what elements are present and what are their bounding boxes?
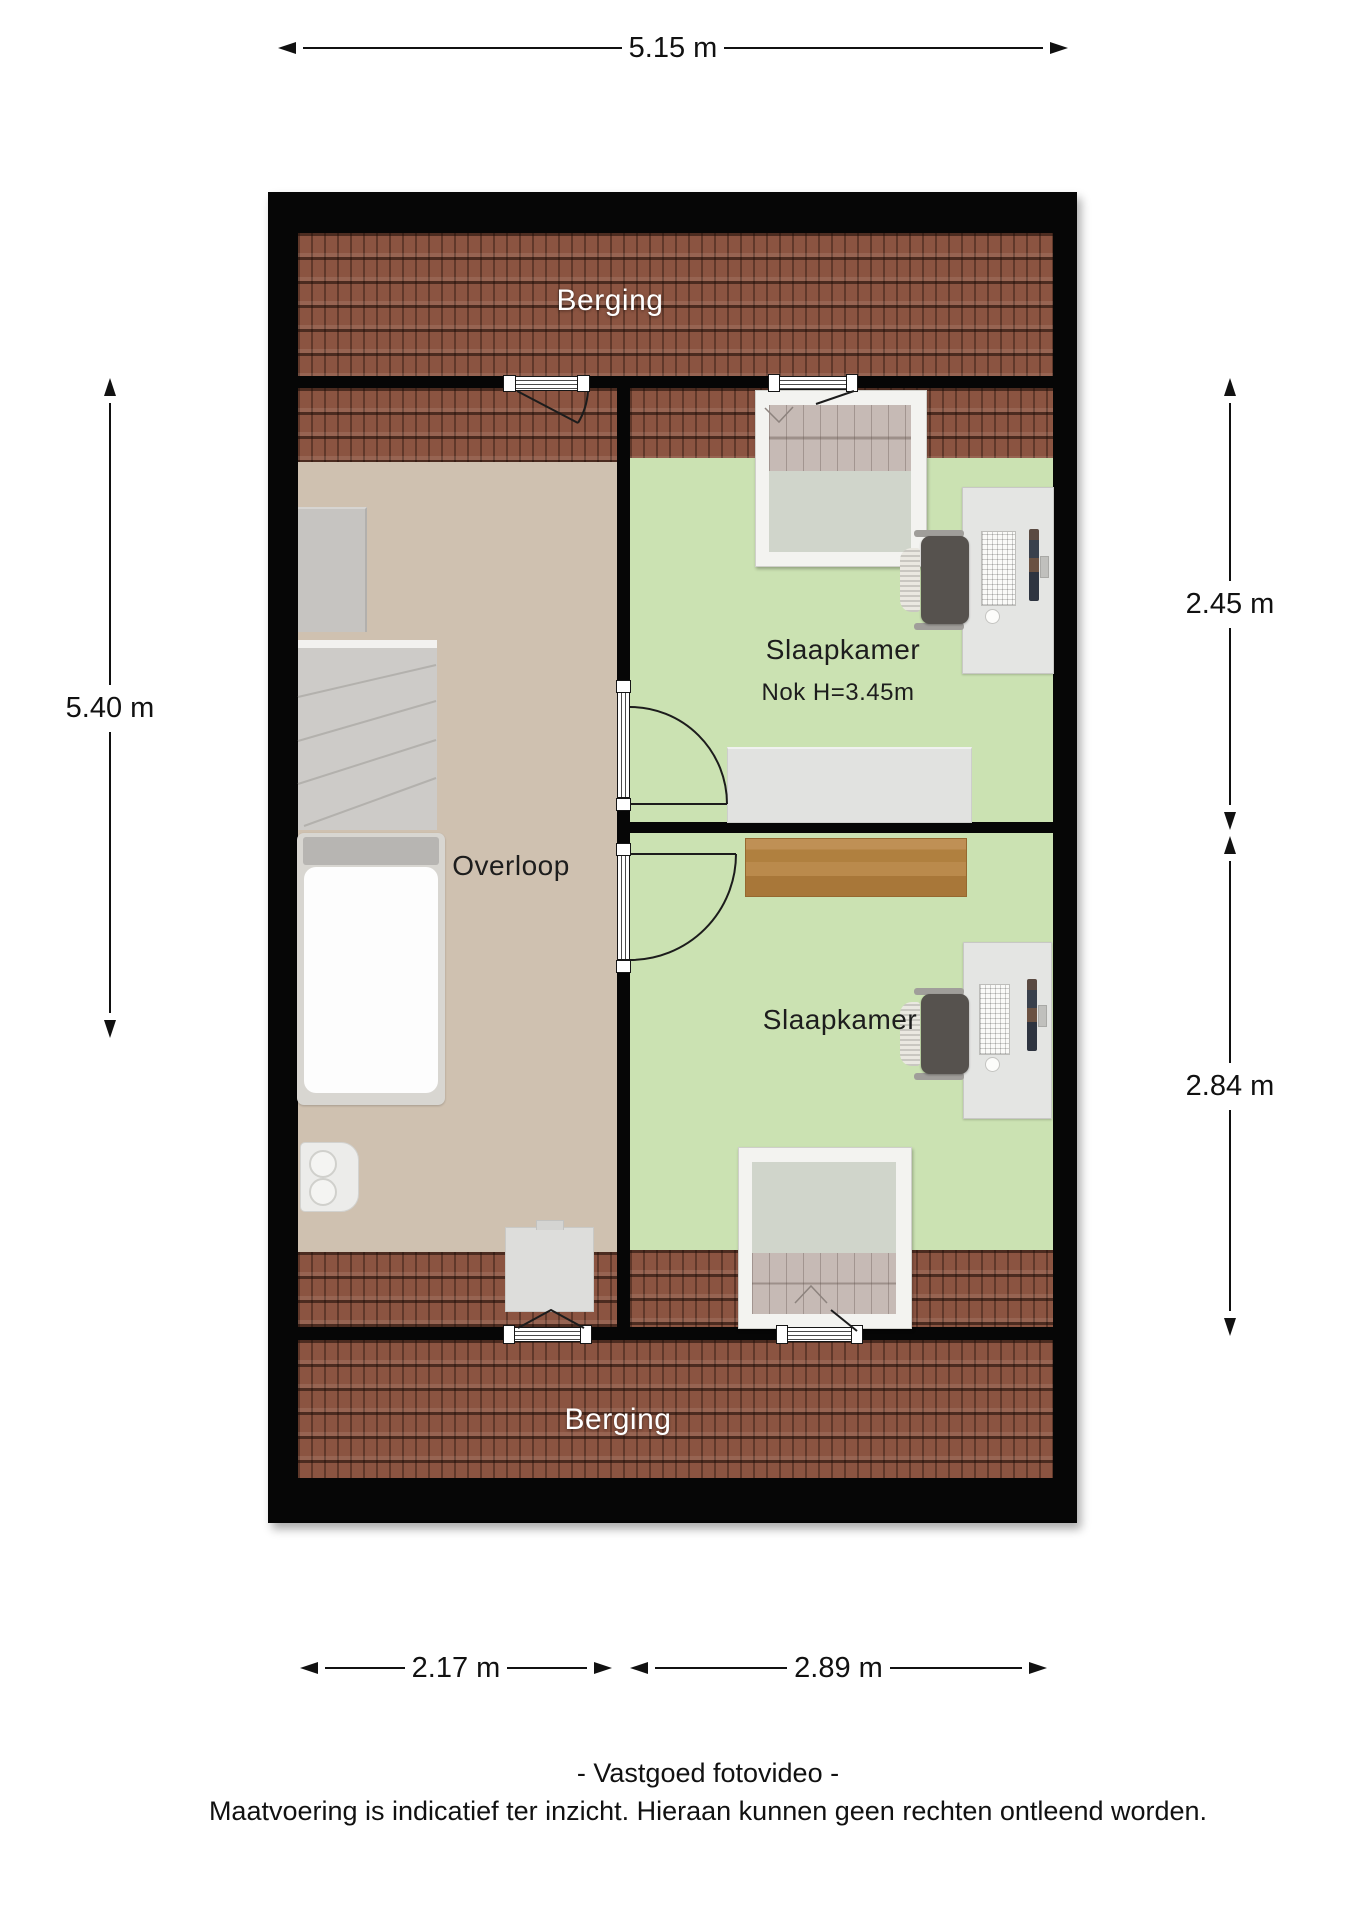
dimension-line: [724, 47, 1043, 49]
dimension-bottom-left-label: 2.17 m: [412, 1652, 501, 1685]
dimension-line: [325, 1667, 405, 1669]
window-jamb: [580, 1325, 592, 1344]
dimension-top-width: 5.15 m: [278, 33, 1068, 63]
arrowhead-left-icon: [278, 42, 296, 54]
bed-duvet: [304, 867, 438, 1093]
window-jamb: [776, 1325, 788, 1344]
door-jamb: [616, 798, 631, 811]
stairs-upper-flight: [298, 507, 367, 632]
dimension-right-lower: 2.84 m: [1178, 836, 1282, 1336]
chair-armrest: [914, 623, 964, 630]
door-lower-bedroom: [617, 855, 630, 960]
room-berging-top: [298, 233, 1053, 376]
bed-headboard: [303, 837, 439, 865]
window-jamb: [768, 374, 780, 392]
boiler-unit: [300, 1142, 359, 1212]
dimension-line: [109, 403, 111, 685]
window-top-wall: [770, 376, 858, 390]
boiler-dial-icon: [309, 1150, 337, 1178]
dimension-bottom-left: 2.17 m: [300, 1653, 612, 1683]
dimension-line: [1229, 1110, 1231, 1312]
dimension-line: [1229, 628, 1231, 806]
door-jamb: [503, 375, 516, 392]
desk-chair-upper: [900, 530, 969, 630]
door-jamb: [616, 680, 631, 693]
chair-armrest: [914, 1073, 964, 1080]
sideboard-upper-bedroom: [727, 747, 972, 823]
dimension-line: [1229, 403, 1231, 581]
window-jamb: [851, 1325, 863, 1344]
chair-backrest: [900, 548, 920, 612]
monitor-stand-icon: [1040, 556, 1049, 578]
footer-disclaimer: Maatvoering is indicatief ter inzicht. H…: [58, 1796, 1358, 1827]
monitor-stand-icon: [1038, 1005, 1047, 1027]
dimension-line: [1229, 861, 1231, 1063]
label-berging-bottom: Berging: [565, 1403, 672, 1437]
dimension-line: [303, 47, 622, 49]
stairs-winder-flight: [298, 648, 437, 830]
monitor-icon: [1027, 979, 1037, 1051]
footer-credit: - Vastgoed fotovideo -: [58, 1758, 1358, 1789]
desk-upper-bedroom: [962, 487, 1054, 674]
room-berging-bottom: [298, 1340, 1053, 1478]
side-table: [505, 1227, 594, 1312]
dimension-right-lower-label: 2.84 m: [1186, 1070, 1275, 1103]
dimension-left-label: 5.40 m: [66, 692, 155, 725]
monitor-icon: [1029, 529, 1039, 601]
arrowhead-left-icon: [300, 1662, 318, 1674]
roof-window-lower: [738, 1147, 912, 1329]
chair-seat: [921, 994, 969, 1074]
footer: - Vastgoed fotovideo - Maatvoering is in…: [0, 1758, 1358, 1827]
boiler-dial-icon: [309, 1178, 337, 1206]
window-jamb: [846, 374, 858, 392]
door-jamb: [616, 843, 631, 856]
sloped-roof-strip-overloop-top: [298, 388, 617, 462]
roof-window-upper-glass-top: [769, 405, 911, 471]
sideboard-wood-lower-bedroom: [745, 838, 967, 897]
floor-plan: Berging Overloop Slaapkamer Nok H=3.45m …: [268, 192, 1077, 1523]
label-berging-top: Berging: [557, 284, 664, 318]
label-slaapkamer-lower: Slaapkamer: [763, 1004, 917, 1036]
door-jamb: [616, 960, 631, 973]
arrowhead-right-icon: [594, 1662, 612, 1674]
dimension-left-height: 5.40 m: [58, 378, 162, 1038]
mouse-icon: [985, 609, 1000, 624]
side-table-handle: [536, 1220, 564, 1230]
dimension-bottom-right: 2.89 m: [630, 1653, 1047, 1683]
arrowhead-left-icon: [630, 1662, 648, 1674]
arrowhead-down-icon: [1224, 812, 1236, 830]
dimension-right-upper-label: 2.45 m: [1186, 588, 1275, 621]
dimension-bottom-right-label: 2.89 m: [794, 1652, 883, 1685]
door-jamb: [577, 375, 590, 392]
floor-plan-page: Berging Overloop Slaapkamer Nok H=3.45m …: [0, 0, 1358, 1920]
dimension-line: [109, 732, 111, 1014]
roof-window-lower-glass-bottom: [752, 1253, 896, 1314]
dimension-top-label: 5.15 m: [629, 32, 718, 65]
arrowhead-right-icon: [1029, 1662, 1047, 1674]
bed: [297, 833, 445, 1105]
stairs-landing-edge: [298, 640, 437, 648]
roof-window-lower-glass-top: [752, 1162, 896, 1253]
desk-lower-bedroom: [963, 942, 1052, 1119]
dimension-right-upper: 2.45 m: [1178, 378, 1282, 830]
label-nok-height: Nok H=3.45m: [762, 679, 915, 707]
window-jamb: [503, 1325, 515, 1344]
dimension-line: [890, 1667, 1022, 1669]
window-bottom-overloop: [505, 1327, 592, 1342]
keyboard-icon: [979, 984, 1010, 1055]
arrowhead-up-icon: [104, 378, 116, 396]
arrowhead-down-icon: [104, 1020, 116, 1038]
arrowhead-up-icon: [1224, 378, 1236, 396]
roof-window-upper-glass-bottom: [769, 471, 911, 552]
mouse-icon: [985, 1057, 1000, 1072]
door-upper-bedroom: [617, 692, 630, 798]
arrowhead-up-icon: [1224, 836, 1236, 854]
chair-seat: [921, 536, 969, 624]
label-slaapkamer-upper: Slaapkamer: [766, 634, 920, 666]
label-overloop: Overloop: [452, 850, 570, 882]
dimension-line: [507, 1667, 587, 1669]
arrowhead-down-icon: [1224, 1318, 1236, 1336]
dimension-line: [655, 1667, 787, 1669]
keyboard-icon: [981, 531, 1016, 606]
arrowhead-right-icon: [1050, 42, 1068, 54]
